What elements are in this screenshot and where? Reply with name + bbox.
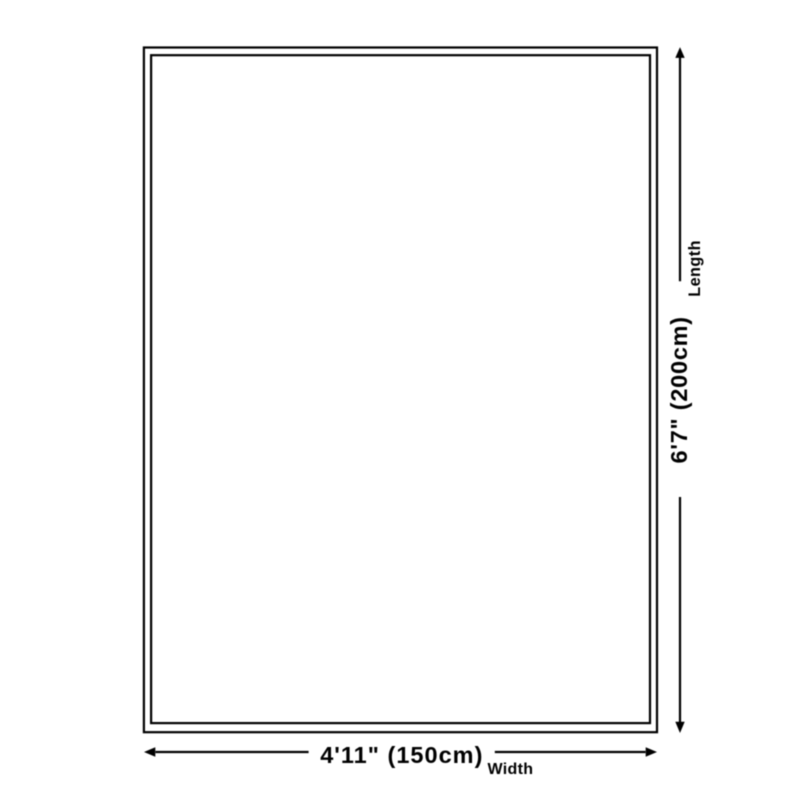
svg-text:6'7" (200cm): 6'7" (200cm) — [666, 316, 692, 463]
svg-text:Length: Length — [686, 240, 704, 297]
svg-text:Width: Width — [488, 761, 534, 778]
svg-text:4'11" (150cm): 4'11" (150cm) — [320, 742, 483, 768]
